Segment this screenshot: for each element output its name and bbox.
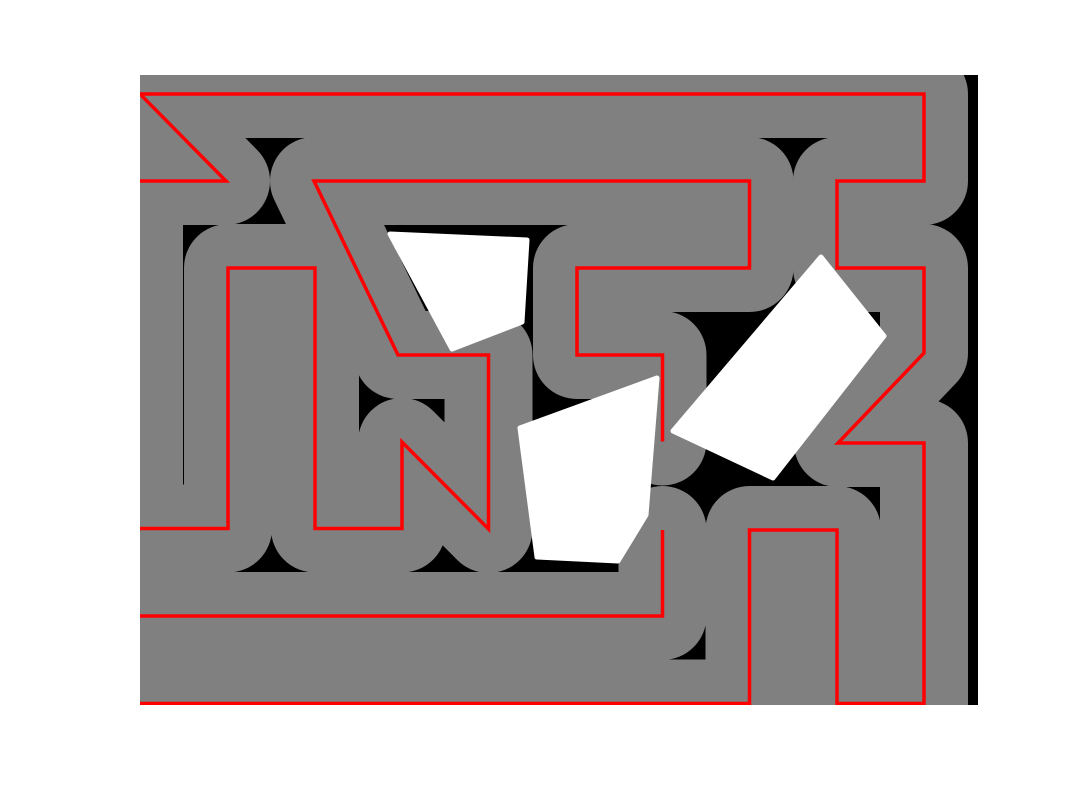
coverage-map-canvas [0,0,1080,810]
coverage-planning-figure [0,0,1080,810]
